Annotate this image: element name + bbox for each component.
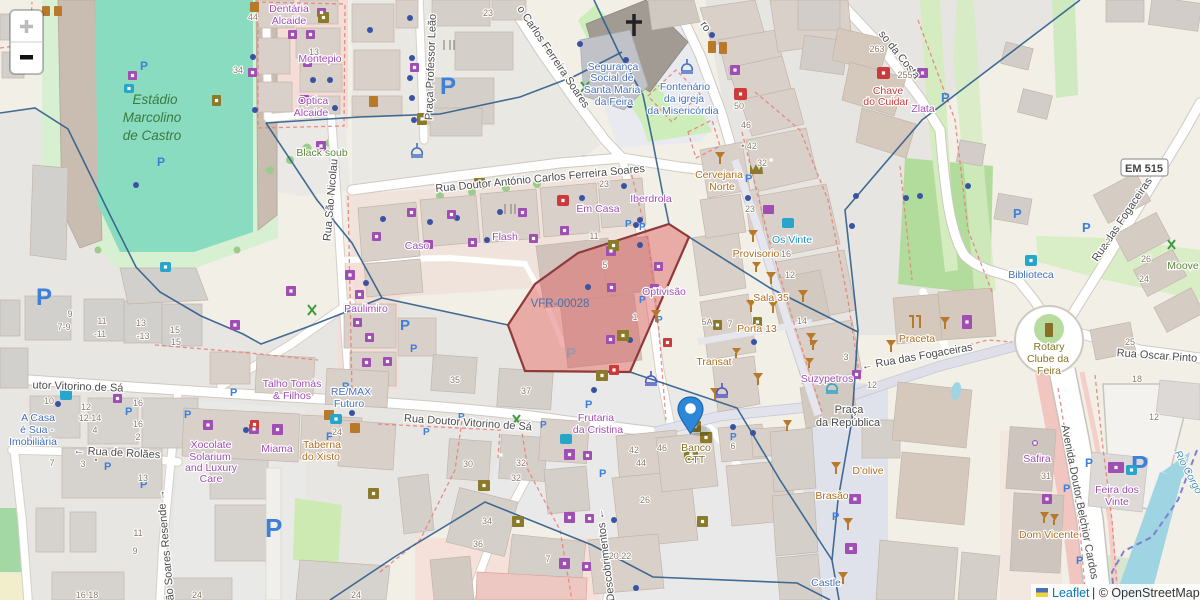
svg-text:1: 1 <box>632 312 637 322</box>
svg-text:& Filhos: & Filhos <box>273 390 311 402</box>
svg-text:P: P <box>104 461 111 473</box>
svg-text:42: 42 <box>629 445 639 455</box>
svg-text:23: 23 <box>745 204 755 214</box>
svg-text:P: P <box>566 345 576 362</box>
svg-text:16: 16 <box>133 398 143 408</box>
svg-text:20.22: 20.22 <box>609 551 632 561</box>
svg-text:Feira: Feira <box>1037 365 1061 377</box>
svg-text:4: 4 <box>92 425 97 435</box>
svg-text:Care: Care <box>200 473 223 485</box>
svg-text:34: 34 <box>233 65 243 75</box>
svg-text:23: 23 <box>599 179 609 189</box>
svg-text:P: P <box>125 406 132 418</box>
svg-text:Social de: Social de <box>590 72 633 84</box>
svg-text:Os Vinte: Os Vinte <box>772 234 812 246</box>
svg-text:Sala 35: Sala 35 <box>753 292 789 304</box>
svg-text:P: P <box>941 90 950 105</box>
svg-text:A Casa: A Casa <box>21 412 55 424</box>
svg-text:Caso: Caso <box>405 240 430 252</box>
svg-text:11: 11 <box>133 528 142 538</box>
svg-text:7: 7 <box>49 458 54 468</box>
svg-text:46: 46 <box>741 120 751 130</box>
svg-text:Santa Maria: Santa Maria <box>584 84 641 96</box>
svg-text:6: 6 <box>730 441 735 451</box>
svg-text:Estádio: Estádio <box>132 92 178 107</box>
svg-text:do Cuidar: do Cuidar <box>863 96 909 108</box>
svg-text:Safira: Safira <box>1023 453 1051 465</box>
svg-text:10: 10 <box>44 396 54 406</box>
svg-text:VFR-00028: VFR-00028 <box>531 298 590 310</box>
svg-text:P: P <box>1013 206 1022 221</box>
svg-text:Iberdrola: Iberdrola <box>630 193 672 205</box>
svg-text:14: 14 <box>797 316 807 326</box>
svg-text:P: P <box>400 317 410 334</box>
svg-text:P: P <box>230 387 237 399</box>
svg-text:Provisorio: Provisorio <box>733 248 780 260</box>
svg-text:D'olive: D'olive <box>852 465 883 477</box>
svg-text:de Castro: de Castro <box>123 128 182 143</box>
svg-text:Flash: Flash <box>492 231 518 243</box>
svg-text:Castle: Castle <box>811 577 841 589</box>
svg-text:11: 11 <box>97 316 106 326</box>
svg-text:24: 24 <box>351 590 361 600</box>
svg-text:Alcaide: Alcaide <box>294 107 329 119</box>
svg-text:| © OpenStreetMap: | © OpenStreetMap <box>1092 586 1200 600</box>
svg-text:Alcaide: Alcaide <box>272 15 307 27</box>
svg-text:Marcolino: Marcolino <box>123 110 182 125</box>
svg-text:Xocolate: Xocolate <box>191 439 232 451</box>
svg-text:Zlata: Zlata <box>911 103 935 115</box>
svg-text:Optivisão: Optivisão <box>642 286 686 298</box>
svg-text:12: 12 <box>785 270 795 280</box>
svg-text:36: 36 <box>473 539 483 549</box>
svg-text:Moove: Moove <box>1167 260 1199 272</box>
svg-text:P: P <box>157 155 165 169</box>
svg-text:Vinte: Vinte <box>1105 496 1129 508</box>
svg-text:P: P <box>423 427 430 438</box>
svg-text:16: 16 <box>133 419 143 429</box>
svg-text:24: 24 <box>1139 274 1149 284</box>
svg-text:Praceta: Praceta <box>899 333 935 345</box>
svg-text:9: 9 <box>67 309 72 319</box>
svg-text:P: P <box>410 343 417 355</box>
svg-text:5A: 5A <box>701 317 712 327</box>
svg-text:Dentária: Dentária <box>269 3 309 15</box>
svg-text:Porta 13: Porta 13 <box>737 323 777 335</box>
svg-text:3: 3 <box>843 352 848 362</box>
svg-text:26: 26 <box>640 495 650 505</box>
svg-text:-11: -11 <box>94 329 106 339</box>
svg-text:P: P <box>832 511 839 523</box>
svg-text:P: P <box>184 409 191 421</box>
svg-text:Banco: Banco <box>681 442 711 454</box>
svg-text:Leaflet: Leaflet <box>1052 586 1090 600</box>
svg-text:9: 9 <box>132 546 137 556</box>
svg-text:P: P <box>1076 555 1083 567</box>
svg-text:P: P <box>656 315 663 326</box>
svg-text:35: 35 <box>450 375 460 385</box>
svg-text:Feira dos: Feira dos <box>1095 484 1139 496</box>
svg-text:12: 12 <box>1149 412 1159 422</box>
svg-text:EM 515: EM 515 <box>1125 163 1163 175</box>
svg-text:Fontenário: Fontenário <box>660 81 710 93</box>
svg-text:da igreja: da igreja <box>664 93 704 105</box>
svg-text:P: P <box>585 399 592 411</box>
svg-text:•: • <box>94 455 97 465</box>
svg-text:da Misericórdia: da Misericórdia <box>647 105 718 117</box>
svg-text:Norte: Norte <box>709 181 735 193</box>
svg-text:Black soub: Black soub <box>296 147 348 159</box>
svg-text:30: 30 <box>463 459 473 469</box>
svg-text:P: P <box>625 219 632 230</box>
svg-text:P: P <box>745 173 752 185</box>
svg-text:do Xisto: do Xisto <box>302 451 340 463</box>
svg-text:15: 15 <box>170 325 180 335</box>
svg-text:Talho Tomás: Talho Tomás <box>263 378 322 390</box>
svg-text:Frutaria: Frutaria <box>578 412 614 424</box>
svg-text:263: 263 <box>869 44 884 54</box>
svg-text:18: 18 <box>1132 374 1142 384</box>
svg-text:da Feira: da Feira <box>595 96 634 108</box>
svg-text:da Cristina: da Cristina <box>573 424 623 436</box>
svg-text:Biblioteca: Biblioteca <box>1008 269 1054 281</box>
svg-text:Imobiliária: Imobiliária <box>9 436 57 448</box>
svg-text:da República: da República <box>816 417 881 429</box>
svg-text:32: 32 <box>516 458 526 468</box>
svg-text:34: 34 <box>482 516 492 526</box>
svg-text:24: 24 <box>332 427 342 437</box>
svg-text:P: P <box>1082 220 1091 235</box>
svg-text:P: P <box>1085 456 1093 470</box>
svg-text:50: 50 <box>734 101 744 111</box>
svg-text:44: 44 <box>636 458 646 468</box>
svg-text:32: 32 <box>757 158 767 168</box>
svg-text:25: 25 <box>1125 337 1135 347</box>
svg-text:Paulimiro: Paulimiro <box>344 303 388 315</box>
svg-text:Brasão: Brasão <box>815 490 848 502</box>
svg-text:46: 46 <box>657 443 667 453</box>
svg-text:37: 37 <box>521 386 531 396</box>
svg-text:• 42: • 42 <box>741 141 757 151</box>
svg-text:Em Casa: Em Casa <box>576 203 619 215</box>
svg-text:Clube da: Clube da <box>1027 353 1069 365</box>
svg-text:3: 3 <box>80 459 85 469</box>
svg-text:15: 15 <box>171 337 181 347</box>
svg-text:12: 12 <box>81 402 91 412</box>
svg-text:Taberna: Taberna <box>303 439 341 451</box>
svg-text:P: P <box>36 284 52 311</box>
svg-text:255: 255 <box>897 70 912 80</box>
svg-text:Cervejaria: Cervejaria <box>695 169 743 181</box>
svg-text:Optica: Optica <box>298 95 329 107</box>
svg-text:P: P <box>599 468 606 480</box>
svg-text:é Sua -: é Sua - <box>20 424 54 436</box>
svg-text:7-9: 7-9 <box>57 322 70 332</box>
svg-text:24: 24 <box>192 590 202 600</box>
svg-text:31: 31 <box>1041 471 1051 481</box>
svg-text:12.14: 12.14 <box>79 413 102 423</box>
svg-text:32: 32 <box>511 473 521 483</box>
svg-text:7: 7 <box>545 554 550 564</box>
svg-text:P: P <box>639 222 646 233</box>
svg-text:23: 23 <box>483 8 493 18</box>
svg-text:12: 12 <box>867 380 877 390</box>
svg-text:2: 2 <box>135 432 140 442</box>
svg-text:Suzypetros: Suzypetros <box>801 373 854 385</box>
svg-text:P: P <box>1063 483 1070 495</box>
svg-text:Futuro: Futuro <box>334 398 365 410</box>
svg-text:2: 2 <box>1105 237 1110 247</box>
svg-text:P: P <box>140 59 148 73</box>
svg-text:16: 16 <box>781 249 791 259</box>
svg-text:5: 5 <box>602 260 607 270</box>
svg-text:CTT: CTT <box>685 454 706 466</box>
svg-text:Dom Vicente: Dom Vicente <box>1019 529 1079 541</box>
svg-text:Praça: Praça <box>835 404 865 416</box>
svg-text:Transat: Transat <box>696 356 731 368</box>
svg-text:7: 7 <box>727 319 732 329</box>
svg-text:P: P <box>540 420 547 431</box>
svg-text:Miama: Miama <box>261 443 293 455</box>
svg-text:26: 26 <box>1141 254 1151 264</box>
svg-text:13: 13 <box>138 473 148 483</box>
svg-text:P: P <box>440 73 456 100</box>
svg-text:Montepio: Montepio <box>298 53 341 65</box>
svg-text:-13: -13 <box>136 331 149 341</box>
svg-text:13: 13 <box>309 47 319 57</box>
svg-text:P: P <box>265 513 282 543</box>
svg-text:Rotary: Rotary <box>1034 341 1066 353</box>
svg-text:13: 13 <box>136 318 146 328</box>
svg-text:RE/MAX: RE/MAX <box>331 386 371 398</box>
svg-text:16.18: 16.18 <box>76 590 99 600</box>
svg-text:44: 44 <box>248 12 258 22</box>
svg-text:11: 11 <box>589 231 598 241</box>
